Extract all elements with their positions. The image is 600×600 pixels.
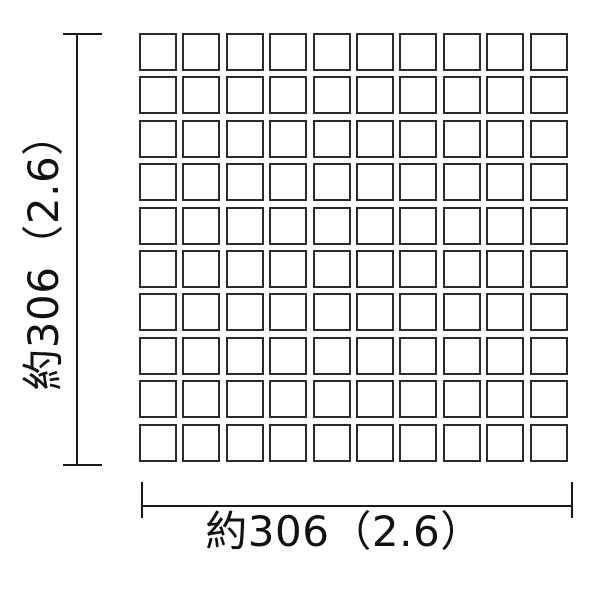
tile bbox=[226, 250, 264, 288]
tile bbox=[269, 163, 307, 201]
tile bbox=[399, 76, 437, 114]
tile bbox=[443, 76, 481, 114]
tile-sheet-dimension-diagram: 約306（2.6） 約306（2.6） bbox=[0, 0, 600, 600]
tile bbox=[226, 163, 264, 201]
tile bbox=[313, 380, 351, 418]
tile bbox=[226, 337, 264, 375]
tile bbox=[486, 33, 524, 71]
tile bbox=[486, 163, 524, 201]
tile bbox=[139, 33, 177, 71]
tile bbox=[443, 250, 481, 288]
tile bbox=[356, 207, 394, 245]
tile bbox=[530, 76, 568, 114]
tile bbox=[443, 380, 481, 418]
tile bbox=[226, 76, 264, 114]
tile bbox=[399, 163, 437, 201]
vertical-dimension-bottom-tick bbox=[63, 464, 102, 466]
tile bbox=[530, 163, 568, 201]
vertical-dimension-line bbox=[76, 34, 78, 465]
tile bbox=[313, 250, 351, 288]
tile bbox=[399, 380, 437, 418]
tile bbox=[139, 163, 177, 201]
tile bbox=[182, 163, 220, 201]
tile bbox=[486, 424, 524, 462]
tile bbox=[139, 293, 177, 331]
horizontal-dimension-right-tick bbox=[571, 482, 573, 519]
tile bbox=[313, 424, 351, 462]
tile bbox=[269, 207, 307, 245]
tile bbox=[182, 337, 220, 375]
tile bbox=[530, 207, 568, 245]
tile bbox=[356, 76, 394, 114]
tile bbox=[182, 33, 220, 71]
tile bbox=[313, 207, 351, 245]
tile bbox=[399, 337, 437, 375]
tile bbox=[313, 33, 351, 71]
tile bbox=[443, 163, 481, 201]
tile bbox=[139, 207, 177, 245]
tile bbox=[399, 293, 437, 331]
tile bbox=[182, 293, 220, 331]
tile bbox=[182, 76, 220, 114]
tile bbox=[530, 250, 568, 288]
tile bbox=[226, 120, 264, 158]
tile bbox=[139, 250, 177, 288]
height-dimension-label: 約306（2.6） bbox=[21, 37, 67, 467]
tile bbox=[486, 293, 524, 331]
tile bbox=[486, 120, 524, 158]
tile-grid bbox=[139, 33, 568, 462]
tile bbox=[269, 76, 307, 114]
tile bbox=[269, 337, 307, 375]
width-dimension-label: 約306（2.6） bbox=[129, 506, 559, 558]
tile bbox=[182, 207, 220, 245]
tile bbox=[443, 120, 481, 158]
tile bbox=[486, 207, 524, 245]
tile bbox=[443, 293, 481, 331]
tile bbox=[399, 207, 437, 245]
tile bbox=[182, 424, 220, 462]
tile bbox=[313, 293, 351, 331]
tile bbox=[486, 380, 524, 418]
tile bbox=[486, 76, 524, 114]
vertical-dimension-top-tick bbox=[63, 33, 102, 35]
tile bbox=[139, 337, 177, 375]
tile bbox=[182, 380, 220, 418]
tile bbox=[443, 33, 481, 71]
tile bbox=[443, 207, 481, 245]
tile bbox=[182, 250, 220, 288]
tile bbox=[139, 424, 177, 462]
tile bbox=[530, 120, 568, 158]
tile bbox=[313, 337, 351, 375]
tile bbox=[226, 380, 264, 418]
tile bbox=[313, 76, 351, 114]
tile bbox=[182, 120, 220, 158]
tile bbox=[226, 207, 264, 245]
tile bbox=[530, 424, 568, 462]
tile bbox=[139, 120, 177, 158]
tile bbox=[486, 250, 524, 288]
tile bbox=[356, 120, 394, 158]
tile bbox=[313, 163, 351, 201]
tile bbox=[356, 293, 394, 331]
tile bbox=[269, 33, 307, 71]
tile bbox=[399, 120, 437, 158]
tile bbox=[269, 120, 307, 158]
tile bbox=[269, 250, 307, 288]
tile bbox=[356, 337, 394, 375]
tile bbox=[269, 380, 307, 418]
tile bbox=[530, 293, 568, 331]
tile bbox=[269, 424, 307, 462]
tile bbox=[486, 337, 524, 375]
tile bbox=[139, 380, 177, 418]
tile bbox=[226, 33, 264, 71]
tile bbox=[313, 120, 351, 158]
tile bbox=[356, 380, 394, 418]
tile bbox=[530, 33, 568, 71]
tile bbox=[226, 424, 264, 462]
tile bbox=[399, 33, 437, 71]
tile bbox=[399, 250, 437, 288]
tile bbox=[443, 337, 481, 375]
tile bbox=[356, 424, 394, 462]
tile bbox=[139, 76, 177, 114]
tile bbox=[530, 380, 568, 418]
tile bbox=[443, 424, 481, 462]
tile bbox=[356, 163, 394, 201]
tile bbox=[356, 33, 394, 71]
tile bbox=[530, 337, 568, 375]
tile bbox=[269, 293, 307, 331]
tile bbox=[399, 424, 437, 462]
tile bbox=[356, 250, 394, 288]
tile bbox=[226, 293, 264, 331]
